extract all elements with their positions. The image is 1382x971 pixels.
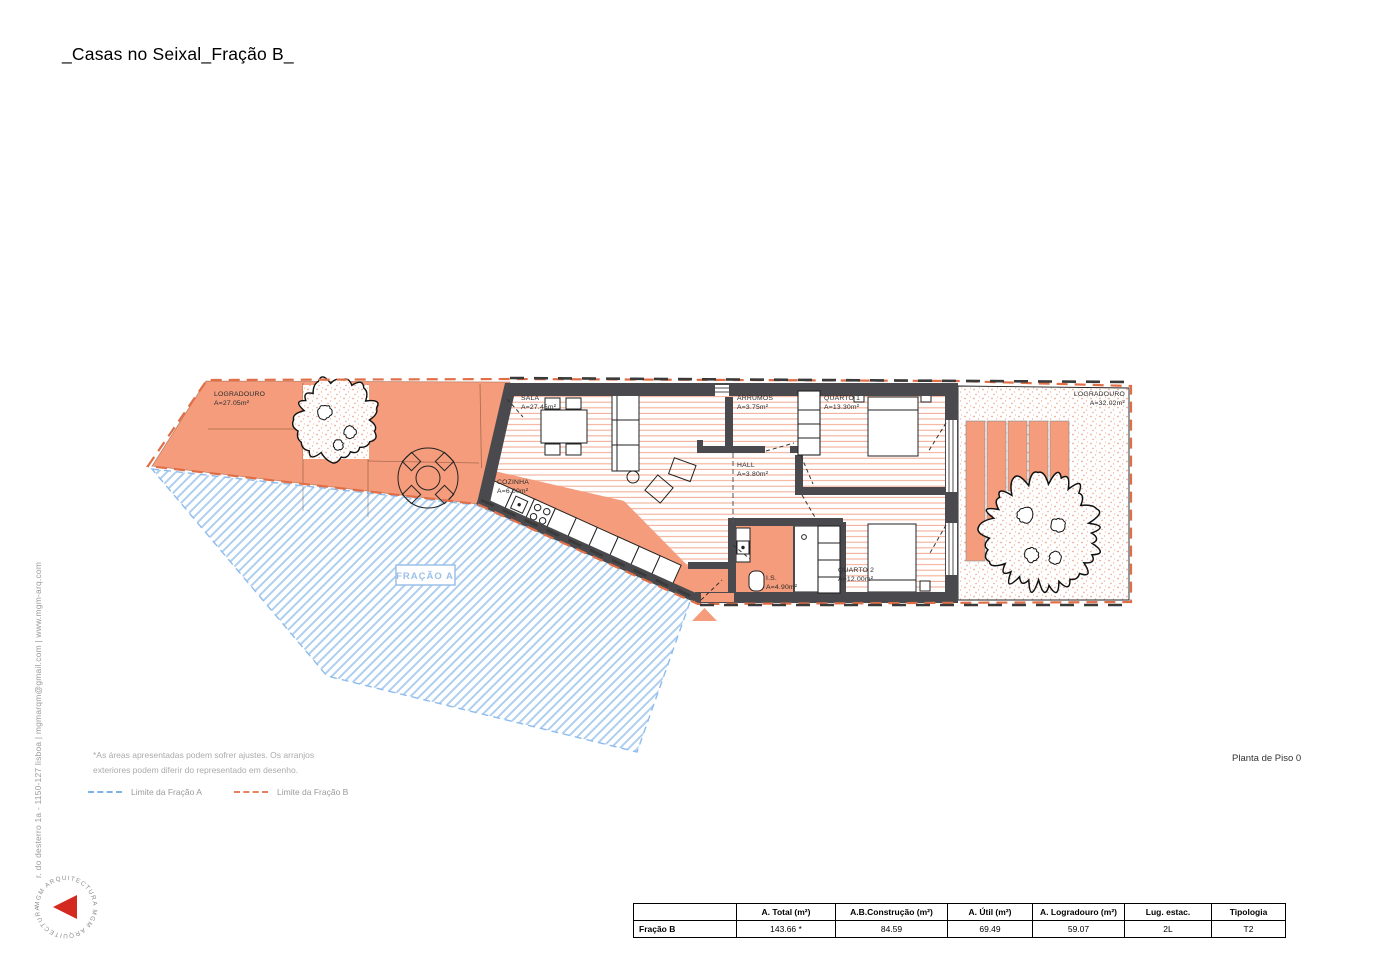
legend-label-a: Limite da Fração A — [131, 787, 202, 797]
room-label-cozinha: COZINHA — [497, 479, 529, 486]
room-label-quarto1: QUARTO 1 — [824, 395, 860, 402]
legend-dash-orange — [234, 791, 268, 793]
header-a-total: A. Total (m²) — [737, 904, 836, 921]
room-label-arrumos: ARRUMOS — [737, 395, 773, 402]
bed-quarto2 — [868, 524, 916, 592]
header-lug-estac: Lug. estac. — [1125, 904, 1212, 921]
room-label-hall: HALL — [737, 462, 755, 469]
svg-text:A=27.05m²: A=27.05m² — [214, 400, 250, 407]
svg-text:A=12.00m²: A=12.00m² — [838, 576, 874, 583]
svg-text:A=4.90m²: A=4.90m² — [766, 584, 798, 591]
header-empty — [634, 904, 737, 921]
nightstand — [920, 581, 930, 591]
room-label-sala: SALA — [521, 395, 539, 402]
note-line-1: *As áreas apresentadas podem sofrer ajus… — [93, 748, 314, 763]
room-label-logradouro-left: LOGRADOURO — [214, 391, 265, 398]
cell-tipologia: T2 — [1212, 921, 1286, 938]
floor-plan-svg: FRAÇÃO A — [0, 0, 1382, 971]
sofa — [612, 395, 639, 471]
svg-text:A=6.00m²: A=6.00m² — [497, 488, 529, 495]
washbasin — [736, 528, 750, 562]
areas-table: A. Total (m²) A.B.Construção (m²) A. Úti… — [633, 903, 1286, 938]
room-label-is: I.S. — [766, 575, 777, 582]
svg-text:A=27.45m²: A=27.45m² — [521, 404, 557, 411]
header-a-util: A. Útil (m²) — [948, 904, 1033, 921]
svg-text:A=13.30m²: A=13.30m² — [824, 404, 860, 411]
entry-arrow — [692, 608, 717, 621]
cell-a-logradouro: 59.07 — [1033, 921, 1125, 938]
header-tipologia: Tipologia — [1212, 904, 1286, 921]
legend-limite-fracao-b: Limite da Fração B — [234, 787, 348, 797]
header-a-logradouro: A. Logradouro (m²) — [1033, 904, 1125, 921]
header-ab-construcao: A.B.Construção (m²) — [836, 904, 948, 921]
architectural-sheet: { "title": "_Casas no Seixal_Fração B_",… — [0, 0, 1382, 971]
legend-label-b: Limite da Fração B — [277, 787, 348, 797]
dining-table — [541, 410, 587, 443]
room-label-quarto2: QUARTO 2 — [838, 567, 874, 574]
areas-table-data-row: Fração B 143.66 * 84.59 69.49 59.07 2L T… — [634, 921, 1286, 938]
cell-fracao-b: Fração B — [634, 921, 737, 938]
cell-ab-construcao: 84.59 — [836, 921, 948, 938]
legend-dash-blue — [88, 791, 122, 793]
closet-quarto1 — [798, 391, 820, 455]
cell-a-total: 143.66 * — [737, 921, 836, 938]
areas-table-header-row: A. Total (m²) A.B.Construção (m²) A. Úti… — [634, 904, 1286, 921]
note-line-2: exteriores podem diferir do representado… — [93, 763, 314, 778]
room-label-logradouro-right: LOGRADOURO — [1074, 391, 1125, 398]
cell-lug-estac: 2L — [1125, 921, 1212, 938]
legend-limite-fracao-a: Limite da Fração A — [88, 787, 202, 797]
fracao-a-label: FRAÇÃO A — [396, 571, 454, 582]
area-disclaimer-note: *As áreas apresentadas podem sofrer ajus… — [93, 748, 314, 778]
svg-text:A=32.02m²: A=32.02m² — [1090, 400, 1126, 407]
svg-text:A=3.80m²: A=3.80m² — [737, 471, 769, 478]
logradouro-right — [958, 386, 1129, 600]
svg-text:A=3.75m²: A=3.75m² — [737, 404, 769, 411]
drawing-title: Planta de Piso 0 — [1232, 753, 1301, 764]
cell-a-util: 69.49 — [948, 921, 1033, 938]
bed-quarto1 — [868, 397, 918, 456]
toilet — [749, 571, 764, 591]
